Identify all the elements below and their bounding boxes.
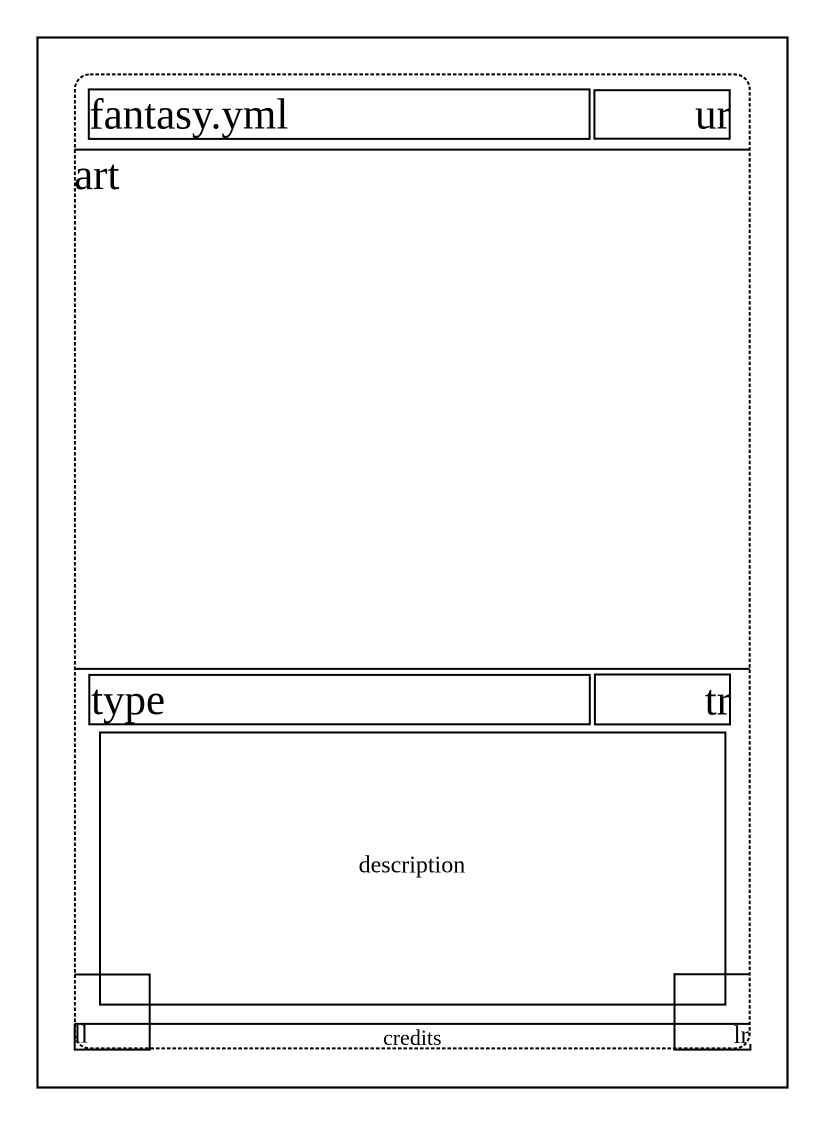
svg-text:ll: ll bbox=[74, 1021, 88, 1048]
svg-text:fantasy.yml: fantasy.yml bbox=[89, 92, 288, 139]
svg-text:art: art bbox=[74, 152, 119, 199]
svg-text:ur: ur bbox=[695, 91, 731, 138]
svg-text:lr: lr bbox=[734, 1022, 750, 1049]
svg-text:type: type bbox=[91, 677, 165, 724]
svg-text:tr: tr bbox=[705, 678, 731, 725]
svg-text:credits: credits bbox=[383, 1025, 442, 1050]
svg-text:description: description bbox=[359, 853, 466, 879]
